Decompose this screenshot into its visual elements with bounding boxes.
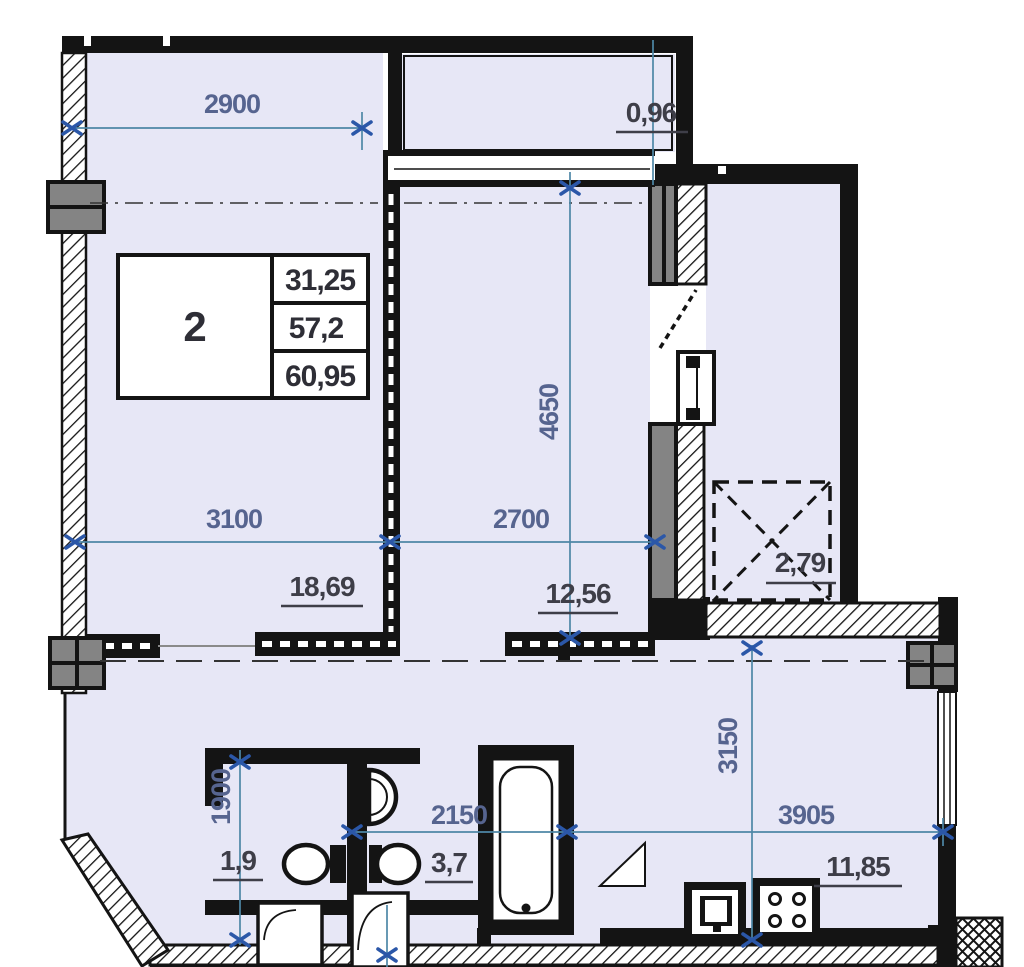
doors <box>660 290 714 424</box>
floor-plan-canvas: 2 31,25 57,2 60,95 2900 3100 2700 4650 1… <box>0 0 1024 967</box>
floor-plan-drawing: 2 31,25 57,2 60,95 2900 3100 2700 4650 1… <box>0 0 1024 967</box>
area-label-bathroom: 3,7 <box>431 847 467 878</box>
area-label-living: 12,56 <box>545 578 610 609</box>
duct-shaft-1 <box>258 903 322 965</box>
legend-table: 2 31,25 57,2 60,95 <box>118 255 368 398</box>
area-label-wc: 1,9 <box>220 845 256 876</box>
dimension-3905-label: 3905 <box>778 800 835 830</box>
dimension-2900-label: 2900 <box>204 89 260 119</box>
door-swing <box>660 290 696 348</box>
toilet-icon-bath <box>369 845 419 883</box>
dimension-1900-label: 1900 <box>206 769 236 825</box>
area-label-closet: 2,79 <box>775 547 826 578</box>
bathtub-icon <box>492 759 560 921</box>
legend-floor-area: 57,2 <box>289 312 344 345</box>
toilet-icon-wc <box>284 845 346 883</box>
stove-icon <box>752 878 820 940</box>
area-label-kitchen: 11,85 <box>826 851 890 882</box>
dimension-2150-label: 2150 <box>431 800 487 830</box>
entry-door-frame <box>678 352 714 424</box>
balcony-window <box>388 150 655 187</box>
duct-shaft-2 <box>352 893 408 967</box>
kitchen-sink-icon <box>684 882 746 942</box>
legend-total-area: 60,95 <box>285 360 355 393</box>
legend-living-area: 31,25 <box>285 264 355 297</box>
area-label-bedroom: 18,69 <box>289 571 354 602</box>
kitchen-window <box>938 692 956 825</box>
dimension-4650-label: 4650 <box>534 384 564 440</box>
dimension-2700-label: 2700 <box>493 504 549 534</box>
flat-number: 2 <box>183 303 206 350</box>
dimension-3100-label: 3100 <box>206 504 262 534</box>
dimension-3150-label: 3150 <box>713 718 743 774</box>
area-label-balcony: 0,96 <box>626 97 677 128</box>
